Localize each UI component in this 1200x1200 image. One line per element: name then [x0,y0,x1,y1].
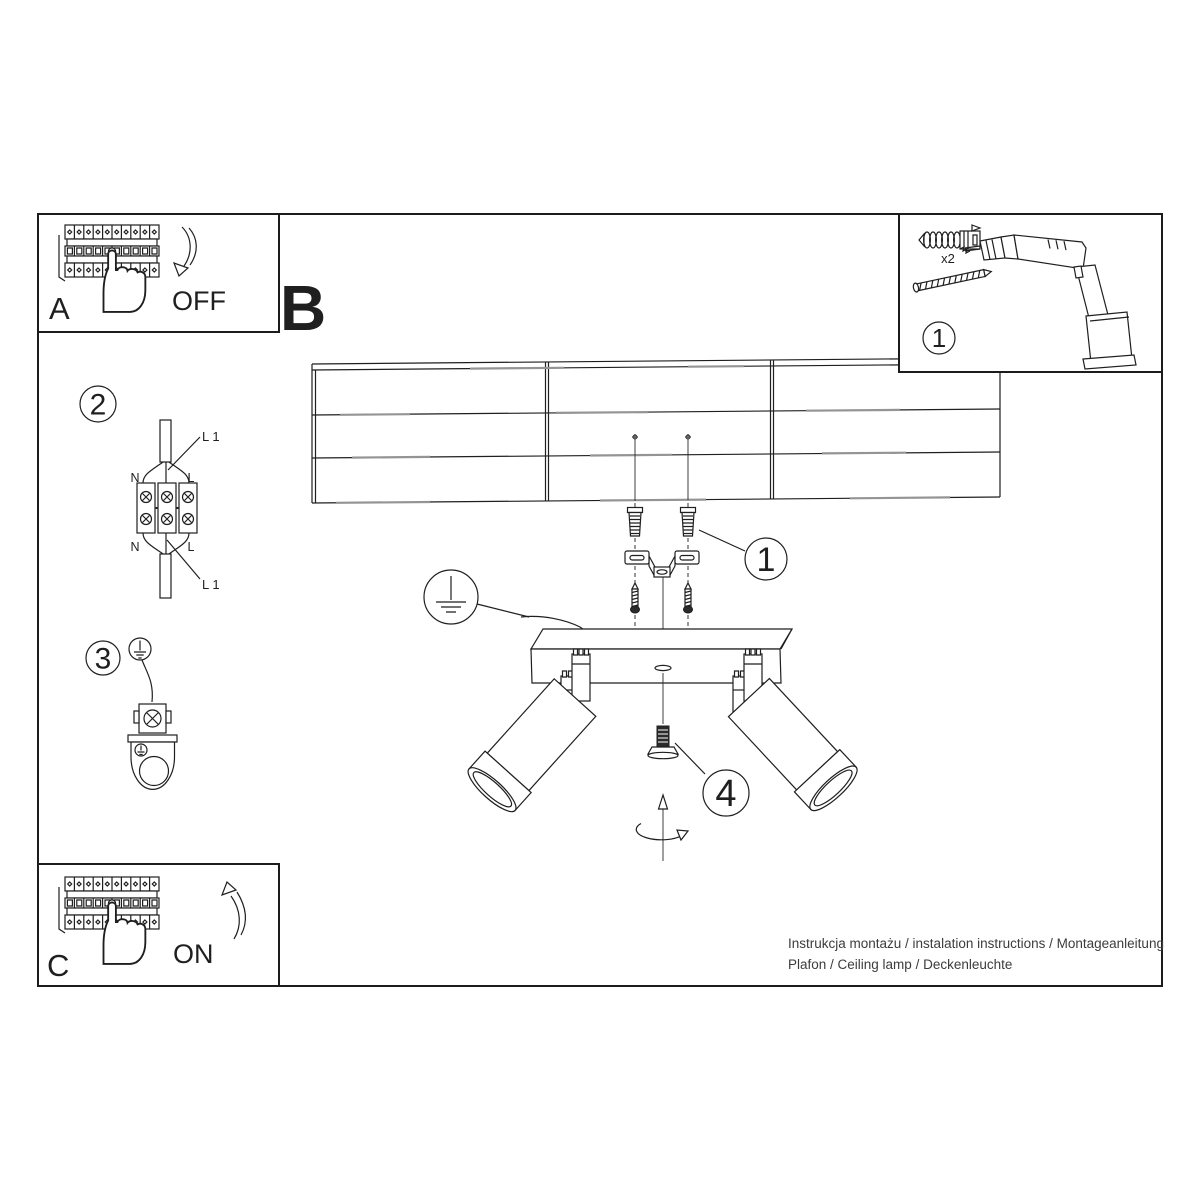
power-off-drawing: OFF A [39,215,278,331]
off-label: OFF [172,286,226,316]
footer-line-2: Plafon / Ceiling lamp / Deckenleuchte [788,954,1164,975]
on-label: ON [173,939,214,969]
wall-plug-icon [919,225,980,249]
callout-number: 1 [932,323,946,353]
panel-c-letter: C [47,948,69,983]
tools-panel: x2 1 [898,213,1163,373]
step-c-panel: ON C [37,863,280,987]
footer-text: Instrukcja montażu / instalation instruc… [788,933,1164,975]
tools-drawing: x2 1 [900,215,1161,371]
power-on-drawing: ON C [39,865,278,985]
callout-tools: 1 [923,322,955,354]
footer-line-1: Instrukcja montażu / instalation instruc… [788,933,1164,954]
step-a-panel: OFF A [37,213,280,333]
drill-icon [960,235,1136,369]
arrow-up-icon [222,882,246,939]
section-b-letter: B [280,276,326,340]
instruction-sheet: 1 [0,0,1200,1200]
arrow-down-icon [174,227,196,276]
quantity-label: x2 [941,251,955,266]
panel-a-letter: A [49,291,70,326]
screw-icon [913,267,993,292]
